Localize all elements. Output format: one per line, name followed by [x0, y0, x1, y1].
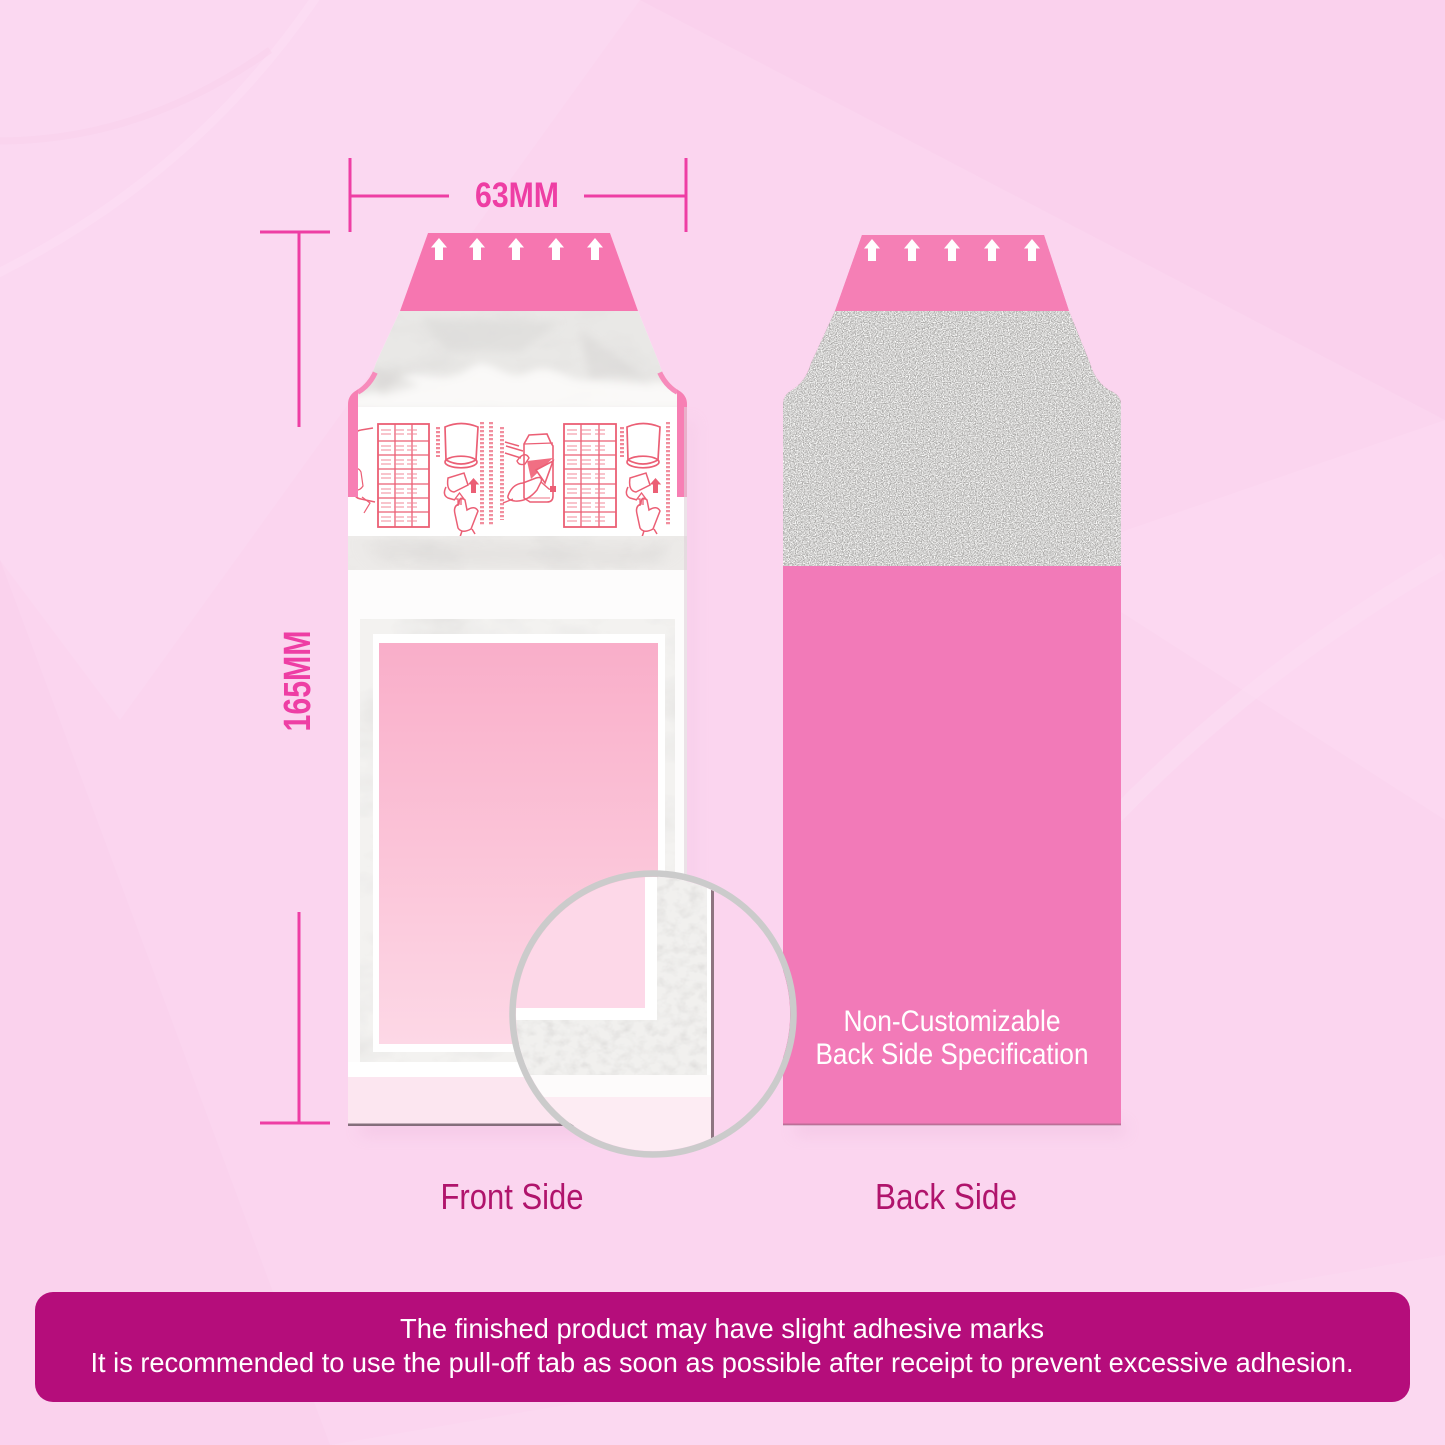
svg-text:Front Side: Front Side: [441, 1176, 584, 1217]
svg-text:It is recommended to use the p: It is recommended to use the pull-off ta…: [91, 1347, 1354, 1378]
svg-text:63MM: 63MM: [475, 176, 559, 215]
svg-text:Back Side Specification: Back Side Specification: [816, 1038, 1089, 1071]
svg-text:The finished product may have: The finished product may have slight adh…: [400, 1313, 1044, 1344]
svg-text:Non-Customizable: Non-Customizable: [844, 1005, 1061, 1038]
svg-text:Back Side: Back Side: [875, 1176, 1017, 1217]
svg-text:165MM: 165MM: [277, 631, 319, 732]
